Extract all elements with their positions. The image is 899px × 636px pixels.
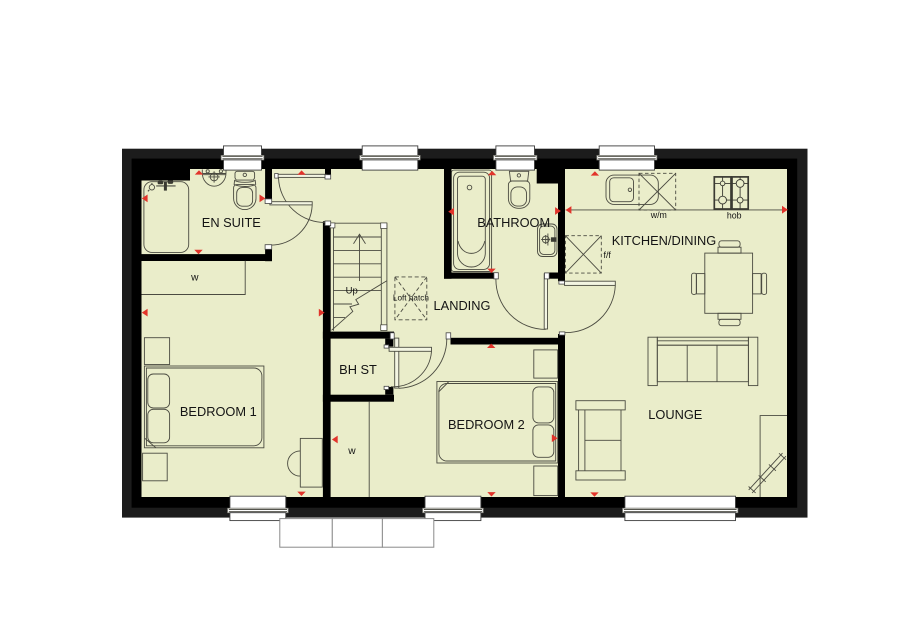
svg-text:LOUNGE: LOUNGE xyxy=(648,407,702,422)
svg-text:BEDROOM 2: BEDROOM 2 xyxy=(448,417,525,432)
svg-text:LANDING: LANDING xyxy=(434,298,491,313)
svg-text:f/f: f/f xyxy=(604,250,612,260)
svg-text:w: w xyxy=(347,446,356,457)
svg-text:hob: hob xyxy=(727,210,742,220)
svg-text:w/m: w/m xyxy=(650,210,667,220)
svg-text:BEDROOM 1: BEDROOM 1 xyxy=(180,404,257,419)
svg-text:BH ST: BH ST xyxy=(339,362,377,377)
svg-text:KITCHEN/DINING: KITCHEN/DINING xyxy=(612,233,717,248)
svg-text:w: w xyxy=(190,272,199,283)
svg-text:EN SUITE: EN SUITE xyxy=(202,215,261,230)
svg-text:BATHROOM: BATHROOM xyxy=(477,215,550,230)
svg-text:Up: Up xyxy=(346,286,358,297)
svg-text:Loft hatch: Loft hatch xyxy=(393,294,429,303)
